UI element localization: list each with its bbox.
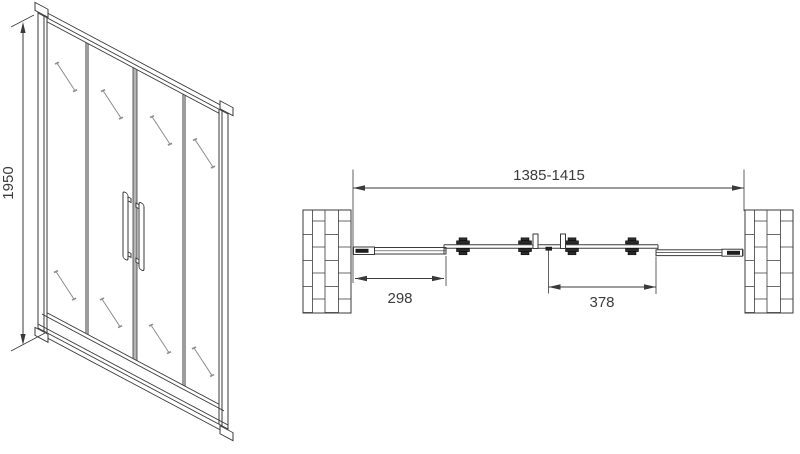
glass-symbol: [150, 114, 172, 148]
arrowhead-left-icon: [355, 276, 367, 282]
right-wall: [745, 210, 793, 313]
handle-tab: [533, 234, 538, 249]
glass-panel-dividers: [86, 43, 185, 387]
left-handle: [123, 191, 128, 261]
glass-symbol: [54, 269, 76, 303]
arrowhead-left-icon: [353, 185, 365, 191]
arrowhead-right-icon: [732, 185, 744, 191]
technical-drawing-canvas: 1950: [0, 0, 800, 454]
glass-symbol: [149, 322, 171, 356]
glass-symbol: [100, 296, 122, 330]
glass-symbol: [192, 345, 214, 379]
height-dimension-label: 1950: [0, 166, 17, 199]
glass-symbol: [55, 60, 77, 94]
roller: [566, 238, 579, 255]
plan-view: 1385-1415 298 378: [303, 167, 793, 313]
roller: [457, 238, 470, 255]
handle-tab: [561, 234, 566, 249]
door-track: [353, 234, 743, 256]
glass-symbol: [101, 87, 123, 121]
center-stop: [546, 247, 553, 251]
left-wall: [303, 210, 351, 313]
left-panel-width-dimension: 298: [355, 256, 446, 307]
left-panel-width-label: 298: [387, 290, 412, 307]
overall-width-label: 1385-1415: [513, 167, 585, 184]
door-panel-width-dimension: 378: [549, 251, 657, 312]
door-assembly: [35, 2, 233, 440]
arrowhead-left-icon: [549, 284, 561, 290]
roller: [626, 238, 639, 255]
arrowhead-right-icon: [644, 284, 656, 290]
roller: [519, 238, 532, 255]
arrowhead-up-icon: [20, 22, 25, 33]
center-meeting-stile: [133, 68, 137, 361]
front-elevation-view: 1950: [0, 2, 233, 440]
door-panel-width-label: 378: [589, 294, 614, 311]
glass-symbol: [193, 136, 215, 170]
arrowhead-right-icon: [432, 276, 444, 282]
right-handle: [139, 202, 144, 272]
